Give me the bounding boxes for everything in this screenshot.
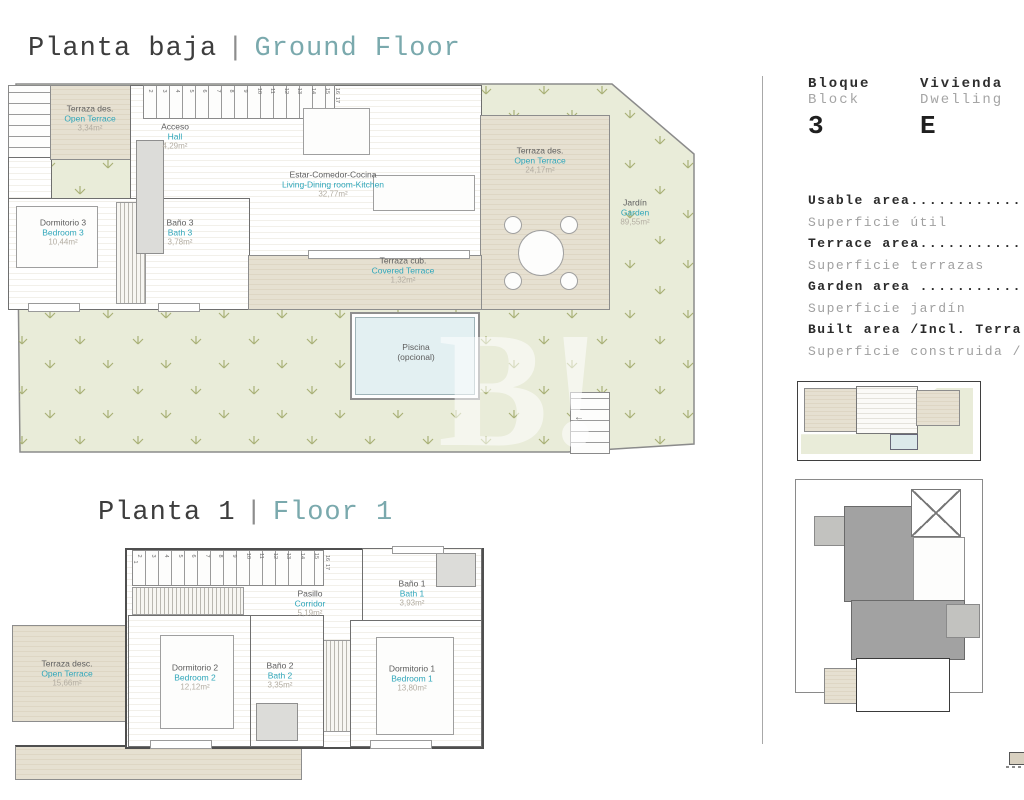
stair-tread-number: 3 (149, 549, 155, 563)
block-info: Bloque Block 3 (808, 76, 870, 141)
stair-tread-number: 17 (334, 97, 340, 103)
ground-floor-plan: 12345 23456789101112131415 1617 ← (8, 80, 703, 465)
stair-tread-number: 7 (215, 84, 221, 98)
stair-tread-number: 5 (188, 84, 194, 98)
stair-numbers-run: 23456789101112131415 (143, 88, 333, 94)
scale-ticks (1006, 766, 1022, 768)
bedroom1-window (370, 740, 432, 749)
floor1-stair-numbers-run: 23456789101112131415 (132, 553, 322, 559)
stair-tread-number: 11 (269, 84, 275, 98)
stair-tread-number: 14 (299, 549, 305, 563)
built-area-row: Built area /Incl. Terra (808, 319, 1024, 341)
garden-area-row-es: Superficie jardín (808, 298, 1024, 320)
area-summary: Usable area............ Superficie útil … (808, 190, 1024, 362)
stair-tread-number: 15 (312, 549, 318, 563)
sofa (373, 175, 475, 211)
room-label-bath2: Baño 2 Bath 2 3,35m² (267, 660, 294, 689)
keyplan-highlight-terrace (824, 668, 860, 704)
site-plan-thumbnail (797, 381, 981, 461)
stair-tread-number: 4 (174, 84, 180, 98)
stair-tread-number: 16 (334, 88, 340, 94)
bedroom3-window (28, 303, 80, 312)
thumb-right-terrace (916, 390, 960, 426)
block-label-en: Block (808, 92, 870, 108)
stair-numbers-side: 1617 (334, 88, 340, 103)
room-label-bedroom2: Dormitorio 2 Bedroom 2 12,12m² (172, 662, 218, 691)
room-label-corridor: Pasillo Corridor 5,19m² (295, 588, 326, 617)
garden-stair-arrow-icon: ← (574, 412, 584, 423)
stair-tread-number: 16 (324, 555, 330, 561)
stair-tread-number: 11 (258, 549, 264, 563)
room-label-pool: Piscina (opcional) (397, 342, 434, 362)
block-value: 3 (808, 111, 870, 141)
terrace-chair (504, 272, 522, 290)
bath3-window (158, 303, 200, 312)
room-label-hall: Acceso Hall 4,29m² (161, 121, 189, 150)
floor1-bottom-terrace (15, 745, 302, 780)
dwelling-value: E (920, 111, 1003, 141)
floor1-title: Planta 1|Floor 1 (98, 498, 393, 528)
stair-tread-number: 15 (323, 84, 329, 98)
stair-tread-number: 4 (163, 549, 169, 563)
dwelling-label-en: Dwelling (920, 92, 1003, 108)
stair-tread-number: 13 (296, 84, 302, 98)
terrace-chair (504, 216, 522, 234)
terrace-chair (560, 216, 578, 234)
floor1-corridor-closet (132, 587, 244, 615)
bath2-shower (256, 703, 298, 741)
thumb-rooms (856, 386, 918, 434)
stair-tread-number: 12 (283, 84, 289, 98)
panel-divider (762, 76, 763, 744)
bath1-window (392, 546, 444, 554)
floor1-stair-numbers-side: 1617 (324, 555, 330, 570)
stair-tread-number: 8 (228, 84, 234, 98)
page: Planta baja|Ground Floor 12345 234567891… (0, 0, 1024, 800)
stair-tread-number: 8 (217, 549, 223, 563)
room-label-garden: Jardín Garden 89,55m² (620, 197, 649, 226)
covered-terrace (248, 255, 482, 310)
stair-tread-number: 12 (272, 549, 278, 563)
kitchen-unit (136, 140, 164, 254)
title-separator: | (217, 34, 254, 64)
terrace-chair (560, 272, 578, 290)
keyplan-highlighted-unit (856, 658, 950, 712)
stair-tread-number: 10 (244, 549, 250, 563)
ground-floor-title-en: Ground Floor (254, 34, 460, 64)
keyplan-balcony-right (946, 604, 980, 638)
room-label-bath1: Baño 1 Bath 1 3,93m² (399, 578, 426, 607)
terrace-area-row: Terrace area........... (808, 233, 1024, 255)
garden-stair (570, 392, 610, 454)
bath1-shower (436, 553, 476, 587)
thumb-pool (890, 434, 918, 450)
room-label-bath3: Baño 3 Bath 3 3,78m² (167, 217, 194, 246)
usable-area-row: Usable area............ (808, 190, 1024, 212)
room-label-bedroom1: Dormitorio 1 Bedroom 1 13,80m² (389, 663, 435, 692)
room-label-floor1-open-terrace: Terraza desc. Open Terrace 15,66m² (41, 658, 92, 687)
floor1-title-en: Floor 1 (273, 498, 393, 528)
stair-tread-number: 13 (285, 549, 291, 563)
keyplan-patio-cross (911, 489, 961, 537)
stair-tread-number: 9 (231, 549, 237, 563)
stair-tread-number: 9 (242, 84, 248, 98)
terrace-area-row-es: Superficie terrazas (808, 255, 1024, 277)
dwelling-label-es: Vivienda (920, 76, 1003, 92)
stair-tread-number: 6 (190, 549, 196, 563)
floor1-bedroom1-closet (322, 640, 352, 732)
floor1-title-es: Planta 1 (98, 498, 236, 528)
ground-floor-title-es: Planta baja (28, 34, 217, 64)
scale-marker (1009, 752, 1024, 765)
stair-tread-number: 5 (177, 549, 183, 563)
stair-tread-number: 10 (255, 84, 261, 98)
dwelling-info: Vivienda Dwelling E (920, 76, 1003, 141)
room-label-bedroom3: Dormitorio 3 Bedroom 3 10,44m² (40, 217, 86, 246)
thumb-terrace (804, 388, 858, 432)
garden-area-row: Garden area ........... (808, 276, 1024, 298)
room-label-covered-terrace: Terraza cub. Covered Terrace 1,32m² (372, 255, 435, 284)
open-terrace-large (480, 115, 610, 310)
neighbour-stair (8, 85, 52, 159)
stair-tread-number: 2 (147, 84, 153, 98)
floor1-plan: 1 23456789101112131415 1617 Pasillo Corr… (10, 545, 480, 780)
dining-table (303, 108, 370, 155)
stair-tread-number: 3 (160, 84, 166, 98)
bedroom2-window (150, 740, 212, 749)
block-label-es: Bloque (808, 76, 870, 92)
room-label-open-terrace-large: Terraza des. Open Terrace 24,17m² (514, 145, 565, 174)
ground-floor-title: Planta baja|Ground Floor (28, 34, 461, 64)
stair-tread-number: 6 (201, 84, 207, 98)
built-area-row-es: Superficie construida / (808, 341, 1024, 363)
key-plan-thumbnail (795, 479, 983, 693)
stair-tread-number: 17 (324, 564, 330, 570)
stair-tread-number: 14 (310, 84, 316, 98)
terrace-table (518, 230, 564, 276)
usable-area-row-es: Superficie útil (808, 212, 1024, 234)
room-label-living: Estar-Comedor-Cocina Living-Dining room-… (282, 169, 384, 198)
title-separator: | (236, 498, 273, 528)
stair-tread-number: 7 (204, 549, 210, 563)
room-label-open-terrace-small: Terraza des. Open Terrace 3,34m² (64, 103, 115, 132)
stair-tread-number: 2 (136, 549, 142, 563)
